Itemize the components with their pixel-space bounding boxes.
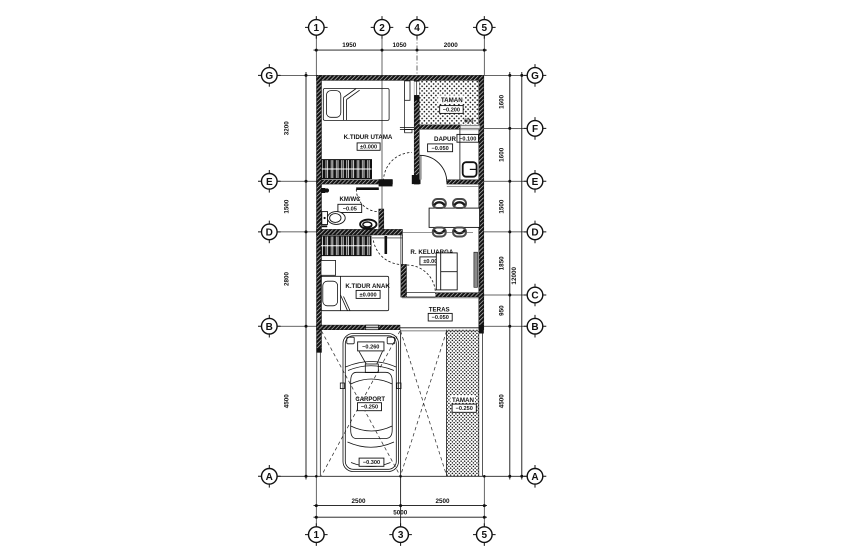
svg-text:1: 1 (314, 23, 320, 34)
svg-text:C: C (531, 291, 538, 302)
svg-text:12000: 12000 (511, 267, 518, 285)
svg-text:−0.250: −0.250 (361, 405, 378, 411)
svg-text:B: B (531, 322, 538, 333)
svg-text:600: 600 (464, 119, 473, 125)
svg-text:−0.250: −0.250 (456, 406, 473, 412)
svg-text:5: 5 (482, 23, 488, 34)
svg-text:−0.050: −0.050 (432, 315, 449, 321)
svg-text:B: B (266, 322, 273, 333)
svg-text:1050: 1050 (392, 42, 407, 49)
svg-text:G: G (265, 71, 273, 82)
svg-text:2: 2 (379, 23, 385, 34)
svg-text:−0.300: −0.300 (363, 460, 380, 466)
svg-text:−0.260: −0.260 (362, 344, 379, 350)
svg-text:1500: 1500 (499, 199, 506, 214)
svg-text:2500: 2500 (435, 498, 450, 505)
svg-text:±0.000: ±0.000 (360, 145, 377, 151)
svg-text:E: E (266, 177, 273, 188)
svg-text:3: 3 (398, 530, 404, 541)
svg-text:−0.100: −0.100 (459, 136, 476, 142)
svg-text:K.TIDUR ANAK: K.TIDUR ANAK (345, 283, 390, 290)
svg-text:1600: 1600 (499, 94, 506, 109)
svg-text:3200: 3200 (284, 121, 291, 136)
svg-text:TERAS: TERAS (429, 307, 450, 314)
svg-text:1: 1 (314, 530, 320, 541)
svg-text:F: F (532, 124, 538, 135)
svg-text:5: 5 (482, 530, 488, 541)
svg-text:−0.200: −0.200 (443, 108, 460, 114)
svg-text:4500: 4500 (499, 394, 506, 409)
svg-text:4500: 4500 (284, 394, 291, 409)
svg-text:D: D (531, 228, 538, 239)
svg-text:2000: 2000 (444, 42, 459, 49)
svg-text:2800: 2800 (284, 272, 291, 287)
svg-text:4: 4 (414, 23, 420, 34)
svg-text:G: G (531, 71, 539, 82)
svg-text:5000: 5000 (393, 509, 408, 516)
svg-text:−0.05: −0.05 (343, 206, 357, 212)
svg-text:K.TIDUR UTAMA: K.TIDUR UTAMA (344, 134, 393, 141)
svg-text:−0.050: −0.050 (431, 146, 448, 152)
svg-text:1950: 1950 (342, 42, 357, 49)
svg-text:DAPUR: DAPUR (434, 136, 457, 143)
svg-text:1500: 1500 (284, 199, 291, 214)
svg-text:1850: 1850 (499, 256, 506, 271)
svg-text:TAMAN: TAMAN (441, 97, 463, 104)
svg-text:2500: 2500 (351, 498, 366, 505)
svg-text:A: A (266, 472, 273, 483)
svg-text:±0.000: ±0.000 (360, 292, 377, 298)
svg-text:A: A (531, 472, 538, 483)
svg-text:1600: 1600 (499, 147, 506, 162)
svg-text:E: E (532, 177, 539, 188)
svg-text:TAMAN: TAMAN (452, 397, 474, 404)
svg-text:D: D (266, 228, 273, 239)
svg-text:950: 950 (499, 305, 506, 316)
